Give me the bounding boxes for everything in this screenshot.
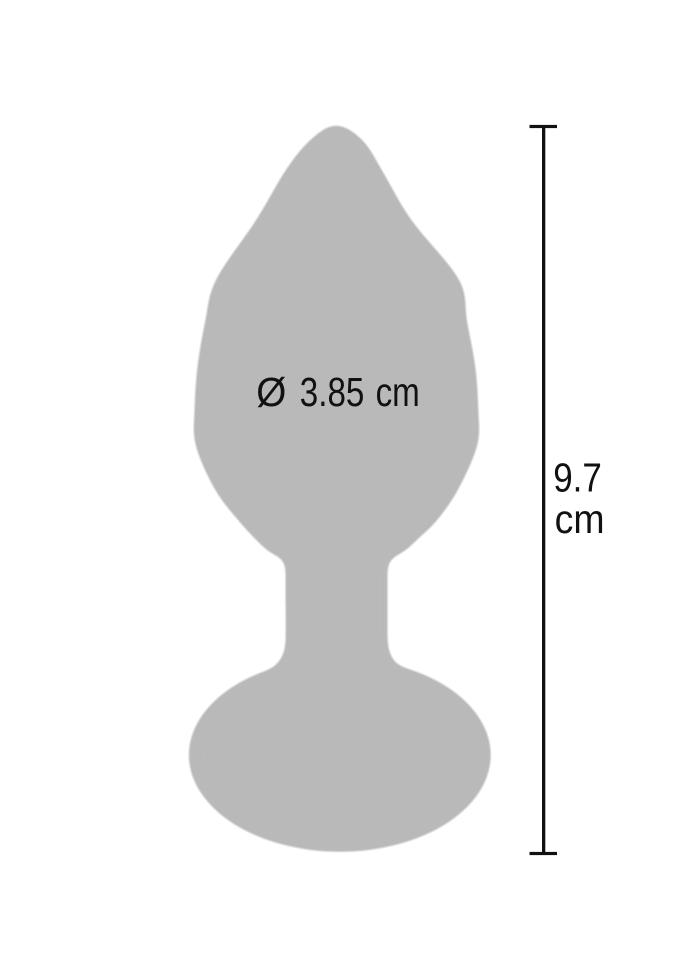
svg-text:3.85 cm: 3.85 cm [300, 369, 420, 415]
svg-text:Ø: Ø [256, 370, 286, 415]
svg-text:cm: cm [555, 498, 605, 543]
svg-text:9.7: 9.7 [553, 456, 602, 501]
